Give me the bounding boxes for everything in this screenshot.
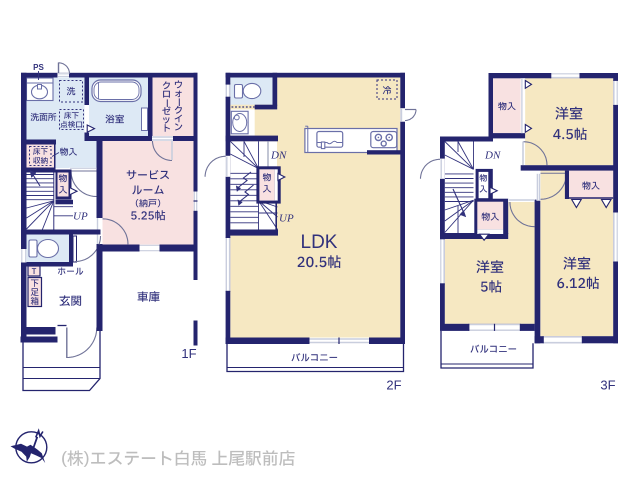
svg-text:1F: 1F (181, 346, 196, 361)
svg-text:UP: UP (279, 213, 294, 225)
svg-text:UP: UP (73, 211, 88, 223)
svg-text:DN: DN (270, 150, 287, 162)
svg-text:2F: 2F (386, 378, 401, 393)
svg-text:3F: 3F (600, 378, 615, 393)
svg-text:LDK: LDK (301, 232, 338, 253)
svg-text:PS: PS (33, 63, 44, 72)
svg-text:DN: DN (484, 150, 501, 162)
